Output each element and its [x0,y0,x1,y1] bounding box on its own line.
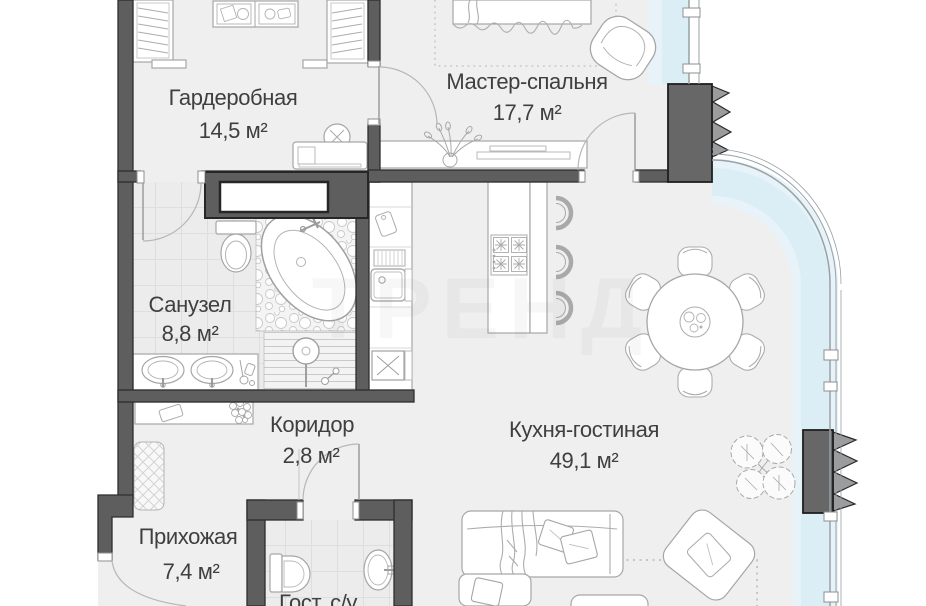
label-kitchen-living-area: 49,1 м² [550,448,619,473]
washer-dryer-unit [213,1,298,27]
label-corridor-area: 2,8 м² [283,443,340,468]
label-guest-wc: Гост. с/у [279,590,357,606]
double-vanity [133,354,258,390]
coffee-table [571,595,648,606]
label-hallway: Прихожая [139,524,238,549]
label-master-bedroom: Мастер-спальня [446,69,607,94]
hallway-bench [134,442,164,510]
label-corridor: Коридор [270,412,354,437]
ventilation-shaft [205,172,368,218]
label-hallway-area: 7,4 м² [163,559,220,584]
bedroom-console [378,141,587,168]
label-kitchen-living: Кухня-гостиная [509,417,659,442]
apartment-floor-plan: ТРЕНД [0,0,926,606]
label-wardrobe: Гардеробная [169,85,298,110]
corridor-console [135,400,253,425]
label-bathroom-area: 8,8 м² [162,321,219,346]
floor-plan-svg: ТРЕНД [0,0,926,606]
label-master-bedroom-area: 17,7 м² [493,100,562,125]
label-bathroom: Санузел [149,292,232,317]
label-wardrobe-area: 14,5 м² [199,118,268,143]
